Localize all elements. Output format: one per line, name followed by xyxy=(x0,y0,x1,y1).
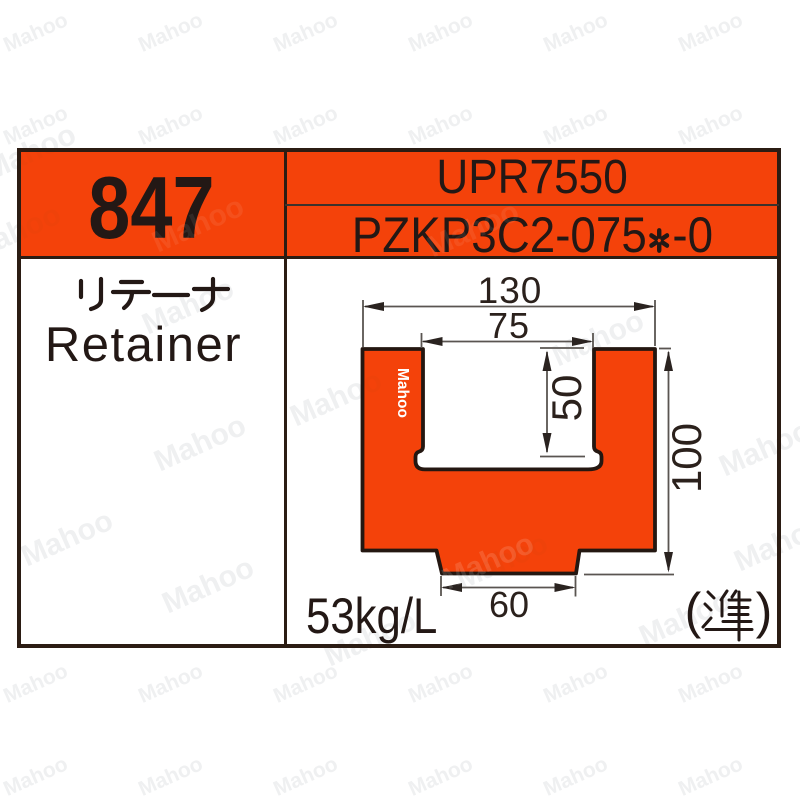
svg-text:60: 60 xyxy=(489,584,529,625)
svg-text:(: ( xyxy=(685,583,702,639)
svg-text:50: 50 xyxy=(543,375,590,422)
svg-text:75: 75 xyxy=(488,305,530,346)
svg-text:100: 100 xyxy=(663,423,710,493)
svg-text:): ) xyxy=(756,583,773,639)
